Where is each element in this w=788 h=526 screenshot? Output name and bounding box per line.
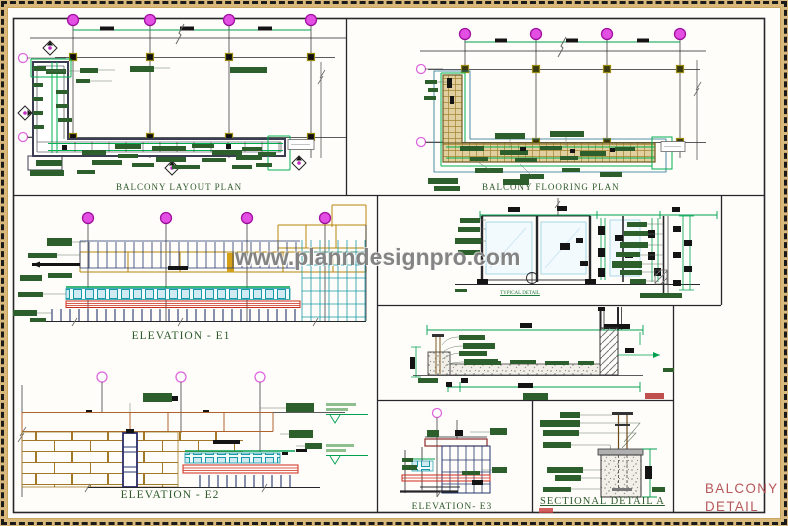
panel-balcony-section [410, 307, 674, 400]
grid-bubble-icon [460, 29, 686, 40]
layout-plan-title: BALCONY LAYOUT PLAN [116, 182, 236, 192]
sectional-detail-a-title: SECTIONAL DETAIL A [540, 496, 660, 507]
grid-bubble-open-icon [417, 65, 426, 74]
drawing-sheet: BALCONY LAYOUT PLAN BALCONY FLOORING PLA… [0, 0, 788, 526]
panel-balcony-flooring-plan [417, 29, 707, 192]
red-stamp [539, 508, 553, 513]
grid-bubble-open-icon [433, 409, 442, 418]
panel-elevation-e3 [400, 409, 507, 498]
grid-bubble-icon [68, 15, 317, 26]
annotation-text-blocks [402, 428, 507, 485]
annotation-text-blocks [459, 335, 498, 365]
watermark: www.planndesignpro.com [235, 244, 520, 271]
column-marker-icon [70, 54, 315, 141]
sheet-title-line1: BALCONY [705, 479, 779, 497]
sheet-title: BALCONY DETAIL [705, 479, 779, 515]
elevation-e1-title: ELEVATION - E1 [126, 330, 236, 342]
sheet-title-line2: DETAIL [705, 497, 779, 515]
grid-bubble-icon [83, 213, 331, 224]
panel-elevation-e2 [18, 372, 368, 497]
grid-bubble-open-icon [417, 138, 426, 147]
flooring-plan-title: BALCONY FLOORING PLAN [482, 182, 606, 192]
elevation-e2-title: ELEVATION - E2 [116, 489, 224, 501]
grid-bubble-open-icon [97, 372, 265, 382]
railing-detail-caption: TYPICAL DETAIL [490, 291, 550, 296]
grid-bubble-open-icon [19, 133, 28, 142]
annotation-text-blocks [13, 238, 72, 322]
red-stamp [645, 393, 664, 399]
grid-bubble-open-icon [19, 54, 28, 63]
panel-balcony-layout-plan [18, 15, 346, 177]
elevation-e3-title: ELEVATION- E3 [404, 502, 500, 512]
